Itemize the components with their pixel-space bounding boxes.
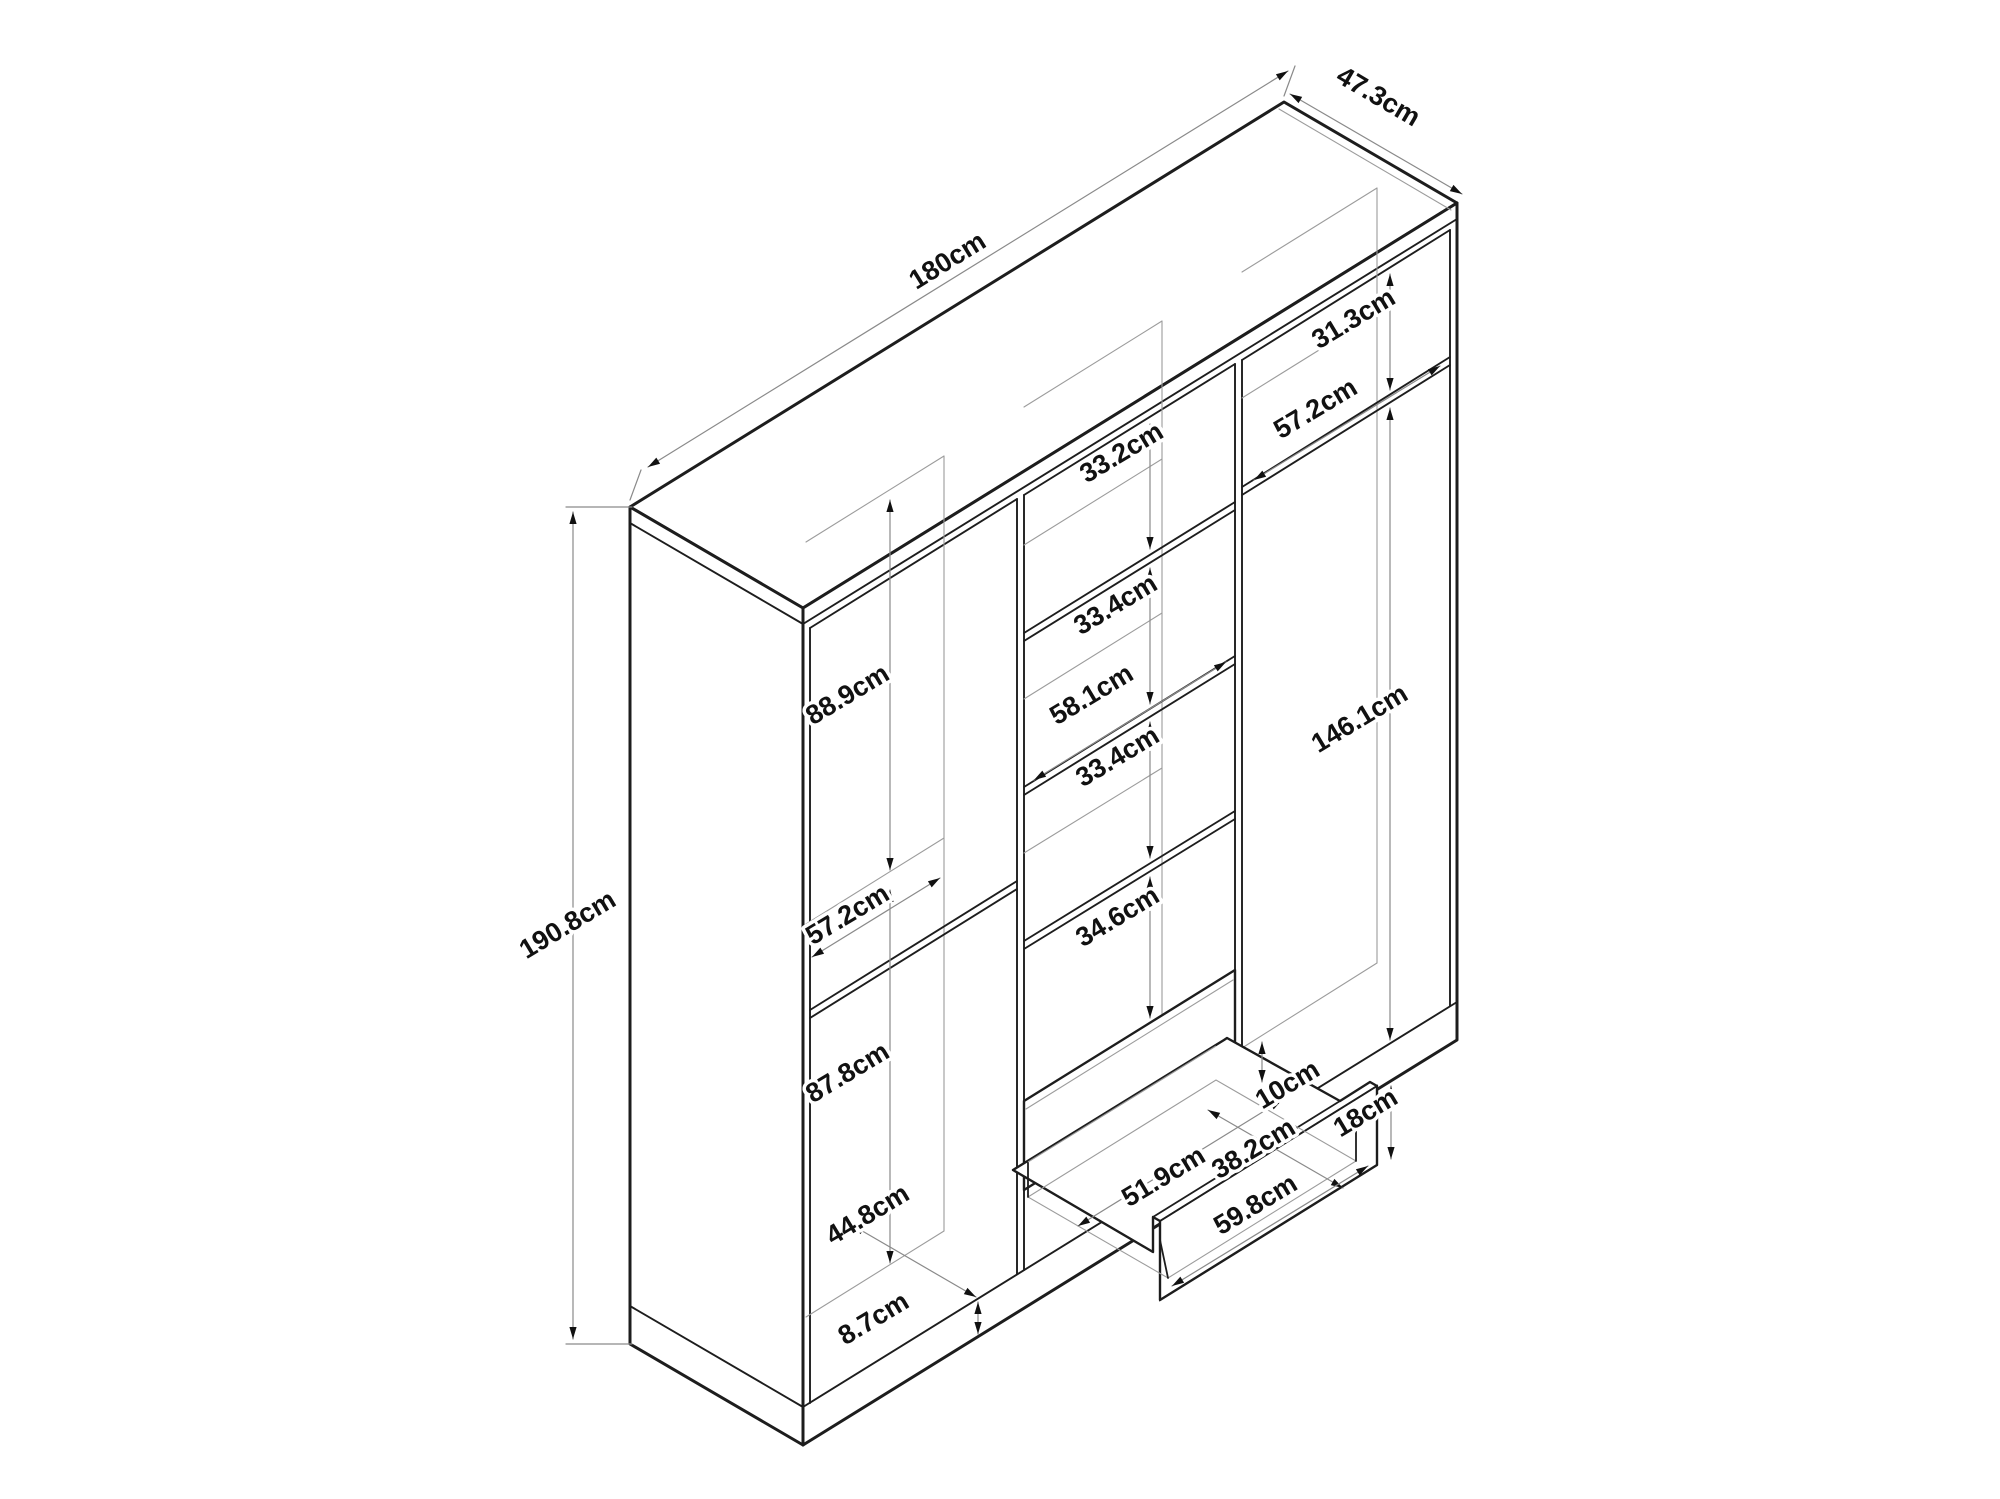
dim-label-47-3cm: 47.3cm bbox=[1331, 60, 1425, 132]
wardrobe-dimension-diagram: 180cm47.3cm190.8cm88.9cm57.2cm87.8cm44.8… bbox=[0, 0, 2000, 1499]
technical-drawing-page: 180cm47.3cm190.8cm88.9cm57.2cm87.8cm44.8… bbox=[0, 0, 2000, 1499]
dim-label-190-8cm: 190.8cm bbox=[514, 884, 621, 965]
left-side-face bbox=[630, 507, 803, 1445]
dim-label-180cm: 180cm bbox=[904, 225, 991, 295]
